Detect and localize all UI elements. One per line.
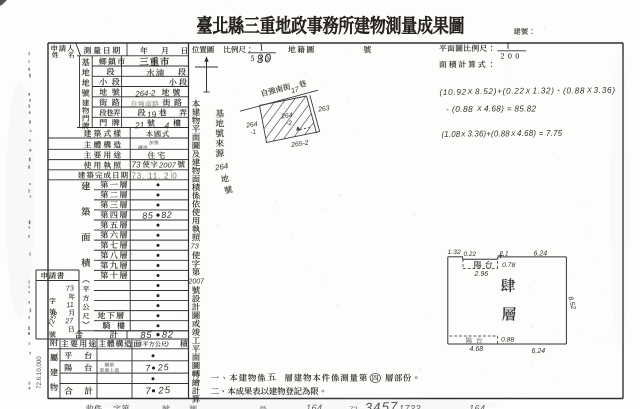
svg-text:25: 25 [157,362,170,373]
svg-text:17: 17 [290,84,301,95]
svg-text:(1.08: (1.08 [442,130,461,139]
svg-text:2007: 2007 [188,279,206,286]
svg-text:X: X [476,106,482,113]
svg-text:85: 85 [140,330,152,340]
svg-text:(10.92: (10.92 [439,88,467,97]
svg-text:7: 7 [145,386,152,397]
svg-text:- (0.88: - (0.88 [446,105,473,114]
svg-text:4.68: 4.68 [470,346,484,353]
svg-text:2.1: 2.1 [499,251,509,258]
svg-text:11: 11 [66,300,74,310]
svg-text:0.22: 0.22 [464,251,477,258]
svg-text:2007: 2007 [158,160,177,169]
svg-text:X: X [586,88,592,95]
svg-text:7: 7 [145,363,152,373]
svg-text:73: 73 [191,242,200,251]
svg-text:19: 19 [146,109,156,120]
svg-text:1.32): 1.32) [533,87,555,96]
svg-text:264: 264 [213,161,229,172]
svg-text:82: 82 [161,209,173,220]
svg-text:X: X [460,131,466,138]
svg-text:3.36)+(0.88: 3.36)+(0.88 [468,130,511,139]
svg-text:4.68) = 85.82: 4.68) = 85.82 [484,104,537,113]
svg-text:3.36): 3.36) [594,86,616,95]
svg-text:21: 21 [134,120,145,131]
svg-text:73: 73 [132,161,141,170]
svg-text:0.88: 0.88 [501,336,514,343]
svg-text:30: 30 [256,51,272,66]
svg-text:X: X [510,131,516,138]
svg-text:X: X [525,88,531,95]
svg-text:85: 85 [142,210,154,221]
svg-text:-: - [557,85,560,95]
svg-text:-2: -2 [286,120,293,128]
svg-text:(0.88: (0.88 [563,86,585,95]
svg-text:82: 82 [162,329,174,339]
svg-text:-1: -1 [250,128,257,136]
svg-text:264-2: 264-2 [134,88,156,98]
svg-text:6.24: 6.24 [532,348,546,355]
svg-text:263: 263 [317,105,330,114]
svg-text:4: 4 [165,120,170,130]
svg-text:2.96: 2.96 [474,271,489,278]
svg-text:27: 27 [64,316,75,326]
svg-text:X: X [466,89,472,96]
svg-text:8.52: 8.52 [566,296,576,311]
svg-text:72.6.10,000: 72.6.10,000 [36,356,43,389]
svg-text:8.52)+(0.22: 8.52)+(0.22 [475,86,525,96]
svg-text:265-2: 265-2 [290,140,309,150]
svg-text:0.78: 0.78 [502,262,515,269]
svg-text:73: 73 [65,283,74,293]
svg-text:25: 25 [157,385,171,397]
svg-text:1.32: 1.32 [448,249,461,256]
svg-text:4.68) = 7.75: 4.68) = 7.75 [517,129,563,138]
svg-text:6.24: 6.24 [534,250,548,257]
